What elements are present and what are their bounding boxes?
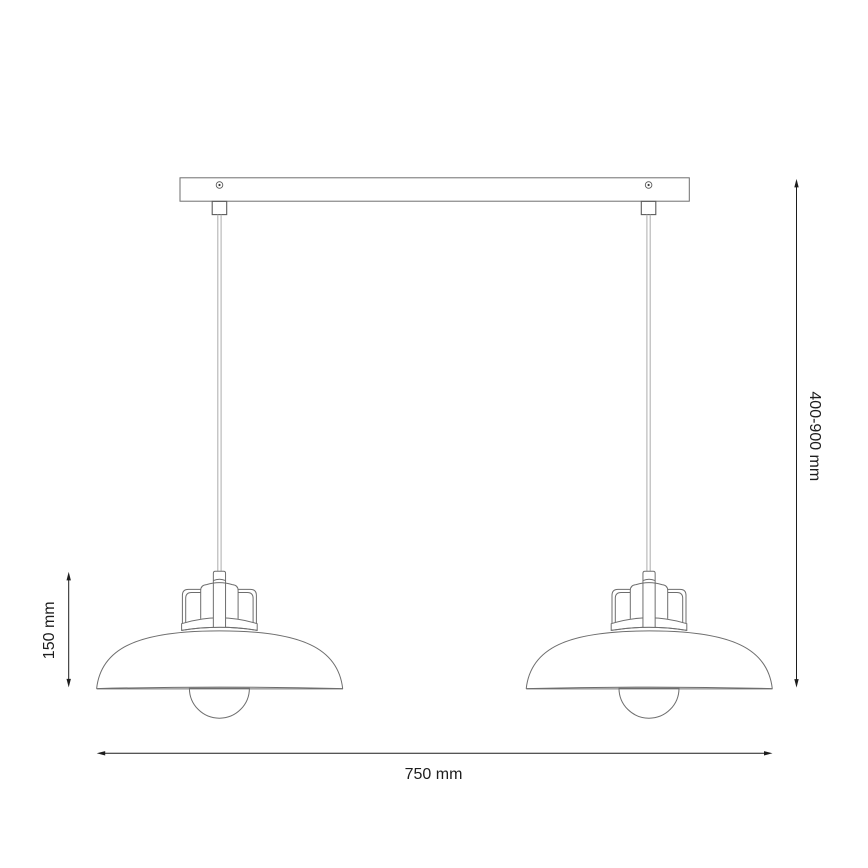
svg-text:150 mm: 150 mm <box>41 601 58 659</box>
svg-text:400-900 mm: 400-900 mm <box>806 391 823 481</box>
svg-text:750 mm: 750 mm <box>405 766 463 783</box>
